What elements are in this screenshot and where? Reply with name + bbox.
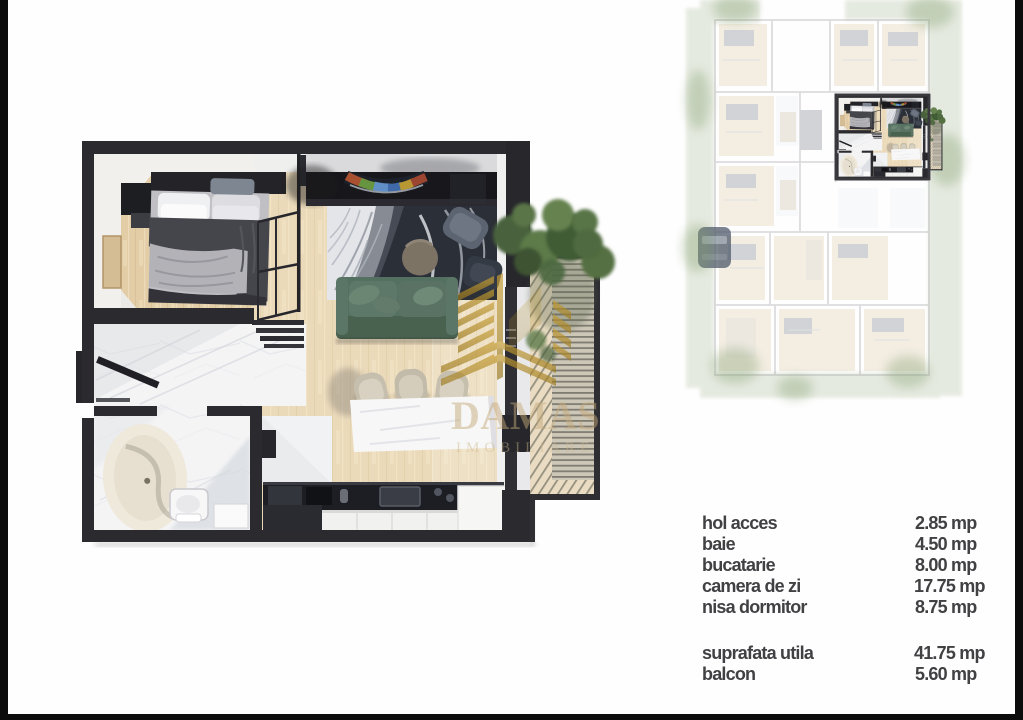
svg-text:IMOBILIARE: IMOBILIARE bbox=[456, 440, 594, 456]
svg-text:DAMAS: DAMAS bbox=[451, 393, 600, 438]
